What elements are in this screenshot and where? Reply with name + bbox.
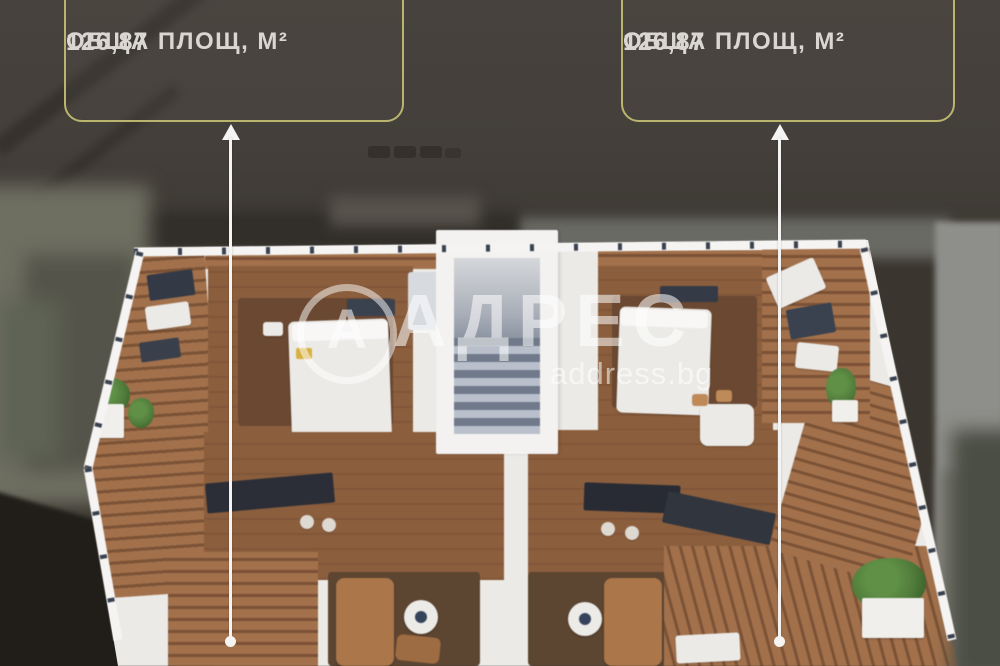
watermark-site: address.bg — [550, 356, 713, 392]
leader-line — [778, 138, 781, 638]
agency-logo-letter: А — [297, 296, 397, 361]
leader-line — [229, 138, 232, 638]
area-label: ОБЩА ПЛОЩ, М² — [66, 26, 288, 58]
area-callout-right: 126,87 ОБЩА ПЛОЩ, М² — [621, 0, 955, 122]
area-label: ОБЩА ПЛОЩ, М² — [623, 26, 845, 58]
watermark-brand: АДРЕС — [393, 278, 694, 363]
area-callout-left: 126,87 ОБЩА ПЛОЩ, М² — [64, 0, 404, 122]
endpoint-dot-icon — [225, 636, 236, 647]
listing-image: А АДРЕС address.bg 126,87 ОБЩА ПЛОЩ, М² … — [0, 0, 1000, 666]
endpoint-dot-icon — [774, 636, 785, 647]
